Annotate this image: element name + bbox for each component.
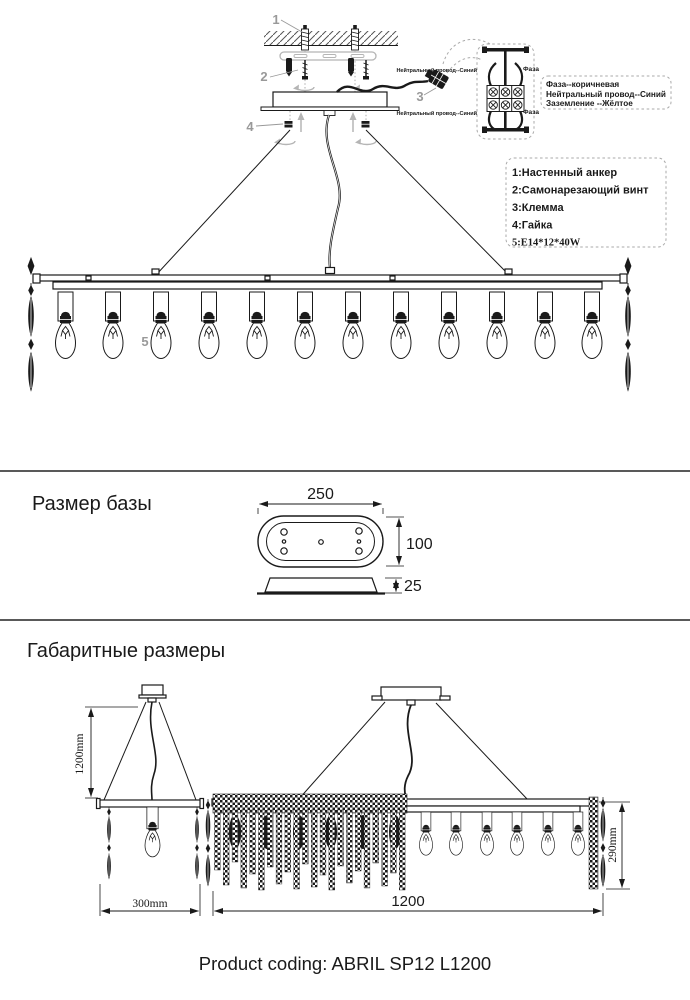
legend-item-3: 3:Клемма bbox=[512, 202, 564, 214]
bar-end-view bbox=[98, 800, 202, 807]
hanger-rail bbox=[53, 282, 602, 289]
side-width-value: 300mm bbox=[132, 898, 167, 910]
fixture-height-value: 290mm bbox=[607, 827, 619, 862]
terminal-block bbox=[487, 86, 524, 112]
base-side-view bbox=[257, 578, 385, 594]
callout-5: 5 bbox=[141, 334, 148, 349]
legend-item-4: 4:Гайка bbox=[512, 220, 553, 232]
callout-4: 4 bbox=[246, 119, 254, 134]
base-thickness-value: 25 bbox=[404, 578, 422, 595]
mounting-strap bbox=[280, 52, 376, 60]
instruction-sheet: 1 2 3 4 bbox=[0, 0, 690, 1000]
callout-1: 1 bbox=[272, 12, 279, 27]
length-value: 1200 bbox=[391, 893, 424, 910]
legend-item-5: 5:E14*12*40W bbox=[512, 238, 581, 249]
legend-item-1: 1:Настенный анкер bbox=[512, 167, 617, 179]
legend-item-2: 2:Самонарезающий винт bbox=[512, 185, 649, 197]
base-height-value: 100 bbox=[406, 536, 433, 553]
base-width-value: 250 bbox=[307, 486, 334, 503]
phase-label-bottom: Фаза bbox=[523, 109, 539, 116]
canopy bbox=[381, 687, 441, 700]
info-line-2: Нейтральный провод--Синий bbox=[546, 90, 666, 99]
base-top-view bbox=[258, 516, 383, 567]
callout-2: 2 bbox=[260, 69, 267, 84]
canopy bbox=[142, 685, 163, 695]
crystal-strand-column bbox=[589, 797, 598, 889]
wall-anchor-icon bbox=[352, 25, 359, 50]
callout-3: 3 bbox=[416, 89, 423, 104]
product-coding: Product coding: ABRIL SP12 L1200 bbox=[199, 953, 491, 974]
phase-label-top: Фаза bbox=[523, 66, 539, 73]
base-size-title: Размер базы bbox=[32, 493, 152, 515]
neutral-wire-label-bottom: Нейтральный провод--Синий bbox=[396, 110, 477, 117]
technical-drawing-svg: 1 2 3 4 bbox=[0, 0, 690, 1000]
ceiling-hatch bbox=[264, 31, 398, 45]
wall-anchor-icon bbox=[302, 25, 309, 50]
nut-icon bbox=[285, 121, 293, 128]
nut-icon bbox=[362, 121, 370, 128]
info-line-1: Фаза--коричневая bbox=[546, 80, 619, 89]
overall-size-title: Габаритные размеры bbox=[27, 640, 225, 662]
chandelier-bar bbox=[38, 275, 622, 281]
drop-height-value: 1200mm bbox=[74, 734, 86, 775]
info-line-3: Заземление --Жёлтое bbox=[546, 99, 633, 108]
neutral-wire-label-top: Нейтральный провод--Синий bbox=[396, 67, 477, 74]
